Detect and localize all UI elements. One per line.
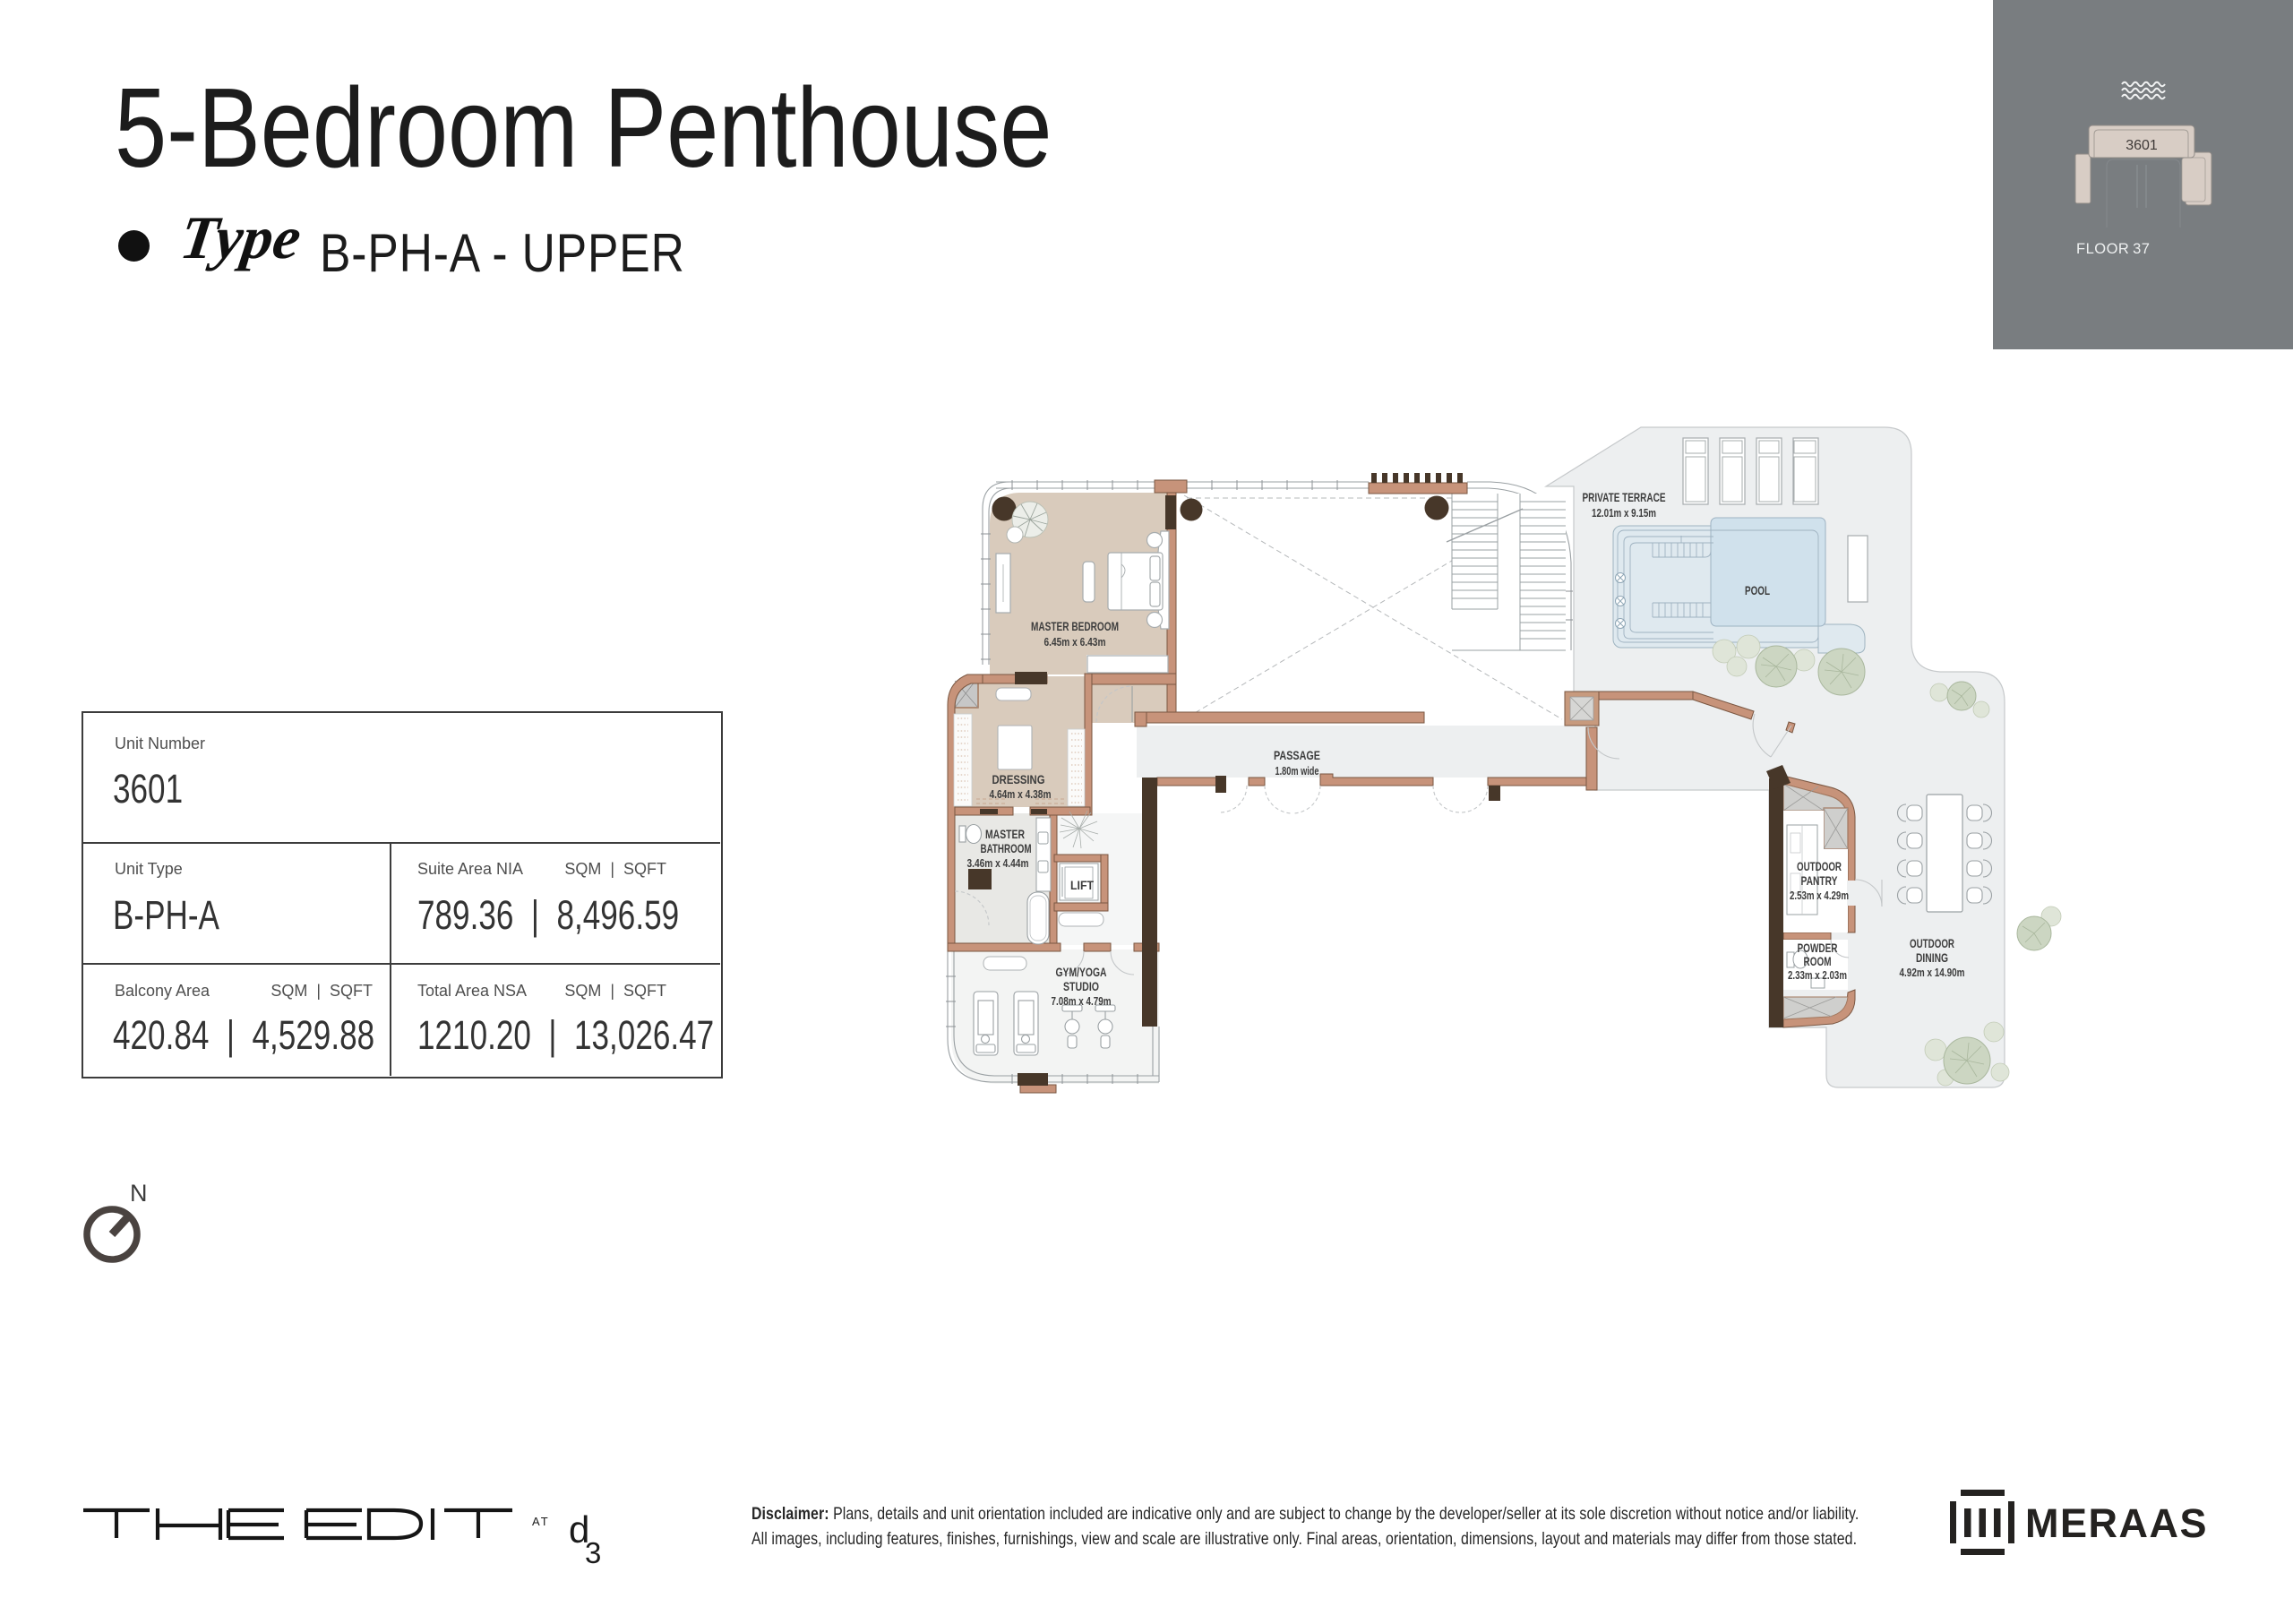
svg-text:GYM/YOGA: GYM/YOGA — [1056, 965, 1107, 979]
svg-text:BATHROOM: BATHROOM — [981, 841, 1032, 855]
svg-text:2.53m x 4.29m: 2.53m x 4.29m — [1790, 889, 1849, 902]
svg-text:STUDIO: STUDIO — [1063, 979, 1099, 993]
svg-text:12.01m x 9.15m: 12.01m x 9.15m — [1592, 506, 1656, 520]
svg-text:1.80m wide: 1.80m wide — [1275, 764, 1319, 778]
svg-text:6.45m x 6.43m: 6.45m x 6.43m — [1044, 635, 1106, 649]
svg-text:AT: AT — [532, 1515, 550, 1528]
svg-text:POWDER: POWDER — [1798, 941, 1838, 955]
svg-text:DRESSING: DRESSING — [992, 772, 1045, 786]
svg-text:7.08m x 4.79m: 7.08m x 4.79m — [1052, 994, 1112, 1008]
svg-text:N: N — [130, 1180, 148, 1207]
svg-text:LIFT: LIFT — [1070, 878, 1094, 892]
svg-text:DINING: DINING — [1916, 950, 1948, 965]
svg-text:PANTRY: PANTRY — [1801, 873, 1838, 888]
svg-text:OUTDOOR: OUTDOOR — [1797, 859, 1842, 873]
svg-text:PRIVATE TERRACE: PRIVATE TERRACE — [1583, 490, 1666, 504]
svg-text:PASSAGE: PASSAGE — [1274, 748, 1320, 762]
svg-text:ROOM: ROOM — [1804, 954, 1832, 968]
svg-text:FLOOR 37: FLOOR 37 — [2076, 241, 2150, 257]
svg-text:4.92m x 14.90m: 4.92m x 14.90m — [1900, 966, 1965, 979]
svg-text:2.33m x 2.03m: 2.33m x 2.03m — [1788, 968, 1847, 982]
svg-text:3.46m x 4.44m: 3.46m x 4.44m — [967, 856, 1029, 870]
svg-text:MASTER: MASTER — [985, 827, 1025, 841]
svg-text:MERAAS: MERAAS — [2025, 1500, 2208, 1546]
svg-text:POOL: POOL — [1745, 583, 1770, 597]
svg-text:MASTER BEDROOM: MASTER BEDROOM — [1031, 619, 1119, 633]
svg-text:4.64m x 4.38m: 4.64m x 4.38m — [990, 787, 1052, 801]
svg-text:OUTDOOR: OUTDOOR — [1910, 936, 1954, 950]
svg-text:3: 3 — [585, 1536, 601, 1569]
svg-text:3601: 3601 — [2126, 138, 2158, 153]
